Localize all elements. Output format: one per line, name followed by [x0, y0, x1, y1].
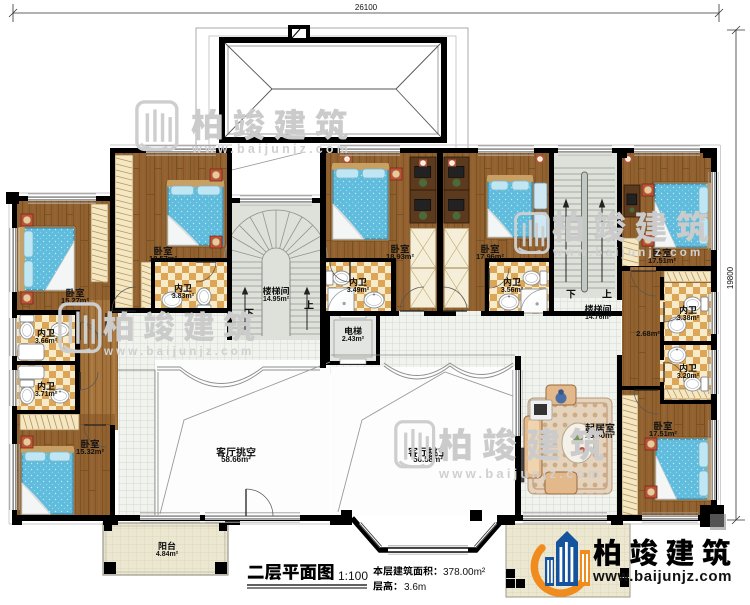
svg-text:26100: 26100 [355, 3, 378, 12]
svg-text:14.95m²: 14.95m² [263, 296, 290, 303]
svg-text:3.38m²: 3.38m² [677, 315, 700, 322]
svg-text:www.baijunjz.com: www.baijunjz.com [592, 568, 732, 585]
svg-text:2.68m²: 2.68m² [636, 329, 660, 338]
svg-text:4.84m²: 4.84m² [156, 551, 179, 558]
svg-text:2.43m²: 2.43m² [342, 336, 365, 343]
svg-text:www.baijunjz.com: www.baijunjz.com [103, 346, 254, 358]
svg-text:18.57m²: 18.57m² [149, 254, 177, 263]
svg-text:3.20m²: 3.20m² [677, 373, 700, 380]
svg-text:19800: 19800 [726, 266, 735, 289]
svg-text:18.93m²: 18.93m² [386, 252, 414, 261]
svg-text:17.51m²: 17.51m² [649, 429, 677, 438]
svg-text:www.baijunjz.com: www.baijunjz.com [191, 142, 351, 156]
svg-text:3.56m²: 3.56m² [501, 287, 524, 294]
svg-text:3.83m²: 3.83m² [172, 293, 195, 300]
svg-text:17.96m²: 17.96m² [476, 252, 504, 261]
svg-text:378.00m²: 378.00m² [443, 567, 486, 578]
svg-text:15.32m²: 15.32m² [76, 447, 104, 456]
svg-text:3.6m: 3.6m [404, 582, 426, 593]
svg-text:www.baijunjz.com: www.baijunjz.com [438, 466, 602, 481]
svg-text:3.66m²: 3.66m² [35, 338, 58, 345]
svg-text:58.66m²: 58.66m² [221, 455, 251, 464]
svg-text:www.baijunjz.com: www.baijunjz.com [552, 247, 703, 259]
svg-text:1:100: 1:100 [338, 569, 368, 583]
svg-text:3.71m²: 3.71m² [35, 391, 58, 398]
svg-text:3.49m²: 3.49m² [347, 287, 370, 294]
svg-text:14.76m²: 14.76m² [585, 314, 612, 321]
